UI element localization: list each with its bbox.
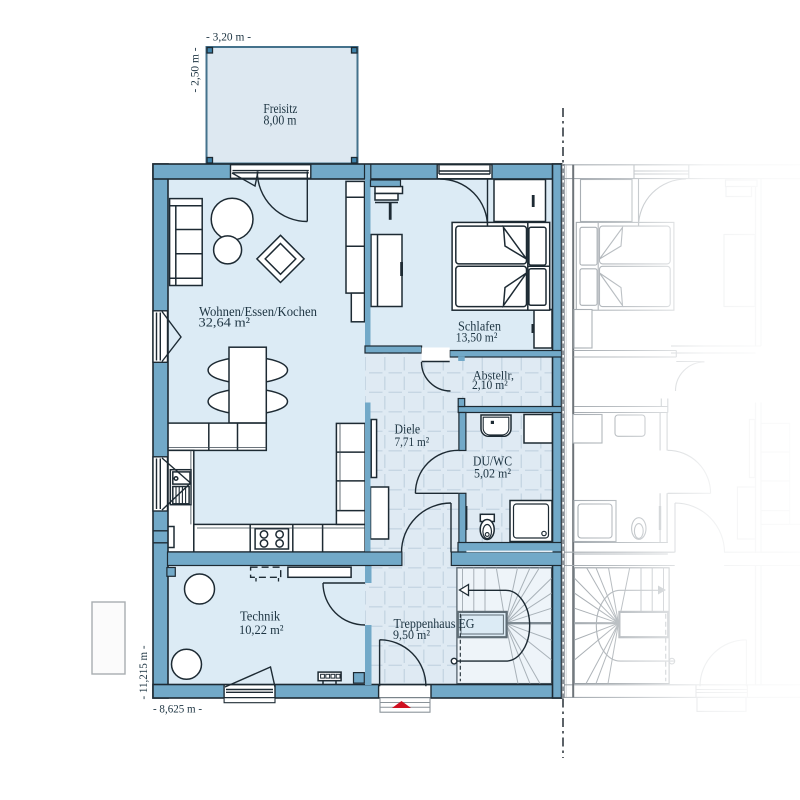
svg-text:- 11,215 m -: - 11,215 m - [138,645,150,699]
svg-text:- 2,50 m -: - 2,50 m - [190,47,202,92]
svg-text:- 8,625 m -: - 8,625 m - [153,704,202,716]
svg-text:- 3,20 m -: - 3,20 m - [206,32,251,44]
svg-text:2,10 m²: 2,10 m² [472,378,508,392]
svg-text:10,22 m²: 10,22 m² [239,622,284,637]
svg-text:13,50 m²: 13,50 m² [456,329,498,344]
svg-text:9,50 m²: 9,50 m² [393,627,430,642]
svg-text:32,64 m²: 32,64 m² [199,315,251,330]
svg-text:8,00 m: 8,00 m [264,112,297,127]
svg-text:5,02 m²: 5,02 m² [474,466,511,481]
svg-text:7,71 m²: 7,71 m² [395,434,430,449]
